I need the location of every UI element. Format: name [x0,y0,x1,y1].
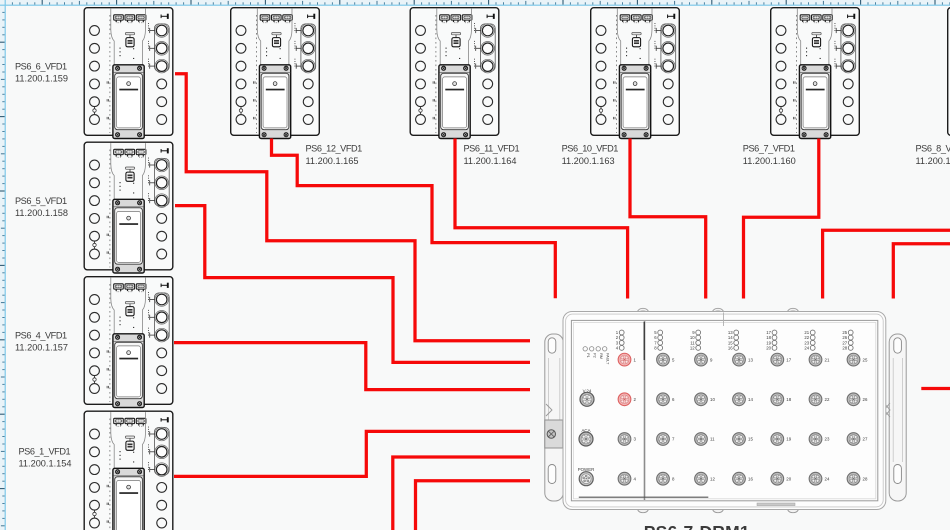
svg-text:26: 26 [863,397,868,402]
svg-text:11.200.1.159: 11.200.1.159 [15,74,68,84]
svg-text:FAULT: FAULT [605,353,609,365]
svg-text:17: 17 [786,357,791,362]
svg-text:25: 25 [863,357,868,362]
svg-text:12: 12 [690,346,695,351]
svg-text:PS6_7_VFD1: PS6_7_VFD1 [743,144,795,154]
svg-text:18: 18 [786,397,791,402]
svg-text:27: 27 [863,437,868,442]
svg-text:20: 20 [786,476,791,481]
svg-text:PS6_4_VFD1: PS6_4_VFD1 [15,331,67,341]
svg-text:11.200.1.158: 11.200.1.158 [15,208,68,218]
svg-text:PS6_11_VFD1: PS6_11_VFD1 [464,144,520,154]
svg-text:16: 16 [728,346,733,351]
svg-text:15: 15 [748,437,753,442]
svg-text:14: 14 [748,397,753,402]
svg-text:12: 12 [710,476,715,481]
svg-text:PS6_5_VFD1: PS6_5_VFD1 [15,196,67,206]
svg-text:PS6-7-DRM1: PS6-7-DRM1 [644,522,750,530]
svg-text:11.200.1.164: 11.200.1.164 [464,156,517,166]
svg-text:P1: P1 [586,353,590,358]
svg-text:P2: P2 [592,353,596,358]
svg-text:PS6_6_VFD1: PS6_6_VFD1 [15,62,67,72]
svg-text:11.200.1.163: 11.200.1.163 [562,156,615,166]
svg-text:PS6_10_VFD1: PS6_10_VFD1 [562,144,619,154]
svg-text:20: 20 [766,346,771,351]
svg-text:28: 28 [863,476,868,481]
svg-text:28: 28 [842,346,847,351]
svg-text:24: 24 [825,476,830,481]
svg-text:10: 10 [710,397,715,402]
svg-text:19: 19 [786,437,791,442]
svg-text:16: 16 [748,476,753,481]
svg-text:11: 11 [710,437,715,442]
svg-text:21: 21 [825,357,830,362]
svg-text:11.200.1.160: 11.200.1.160 [743,156,796,166]
svg-text:PS6_12_VFD1: PS6_12_VFD1 [306,144,363,154]
svg-text:PS6_8_VFD1: PS6_8_VFD1 [916,144,950,154]
svg-text:24: 24 [804,346,809,351]
svg-text:RM: RM [599,353,603,359]
svg-text:22: 22 [825,397,830,402]
svg-text:23: 23 [825,437,830,442]
svg-text:13: 13 [748,357,753,362]
svg-text:11.200.1.161: 11.200.1.161 [916,156,950,166]
svg-text:11.200.1.154: 11.200.1.154 [19,458,72,468]
svg-text:11.200.1.165: 11.200.1.165 [306,156,359,166]
svg-text:PS6_1_VFD1: PS6_1_VFD1 [19,446,71,456]
svg-text:11.200.1.157: 11.200.1.157 [15,343,68,353]
